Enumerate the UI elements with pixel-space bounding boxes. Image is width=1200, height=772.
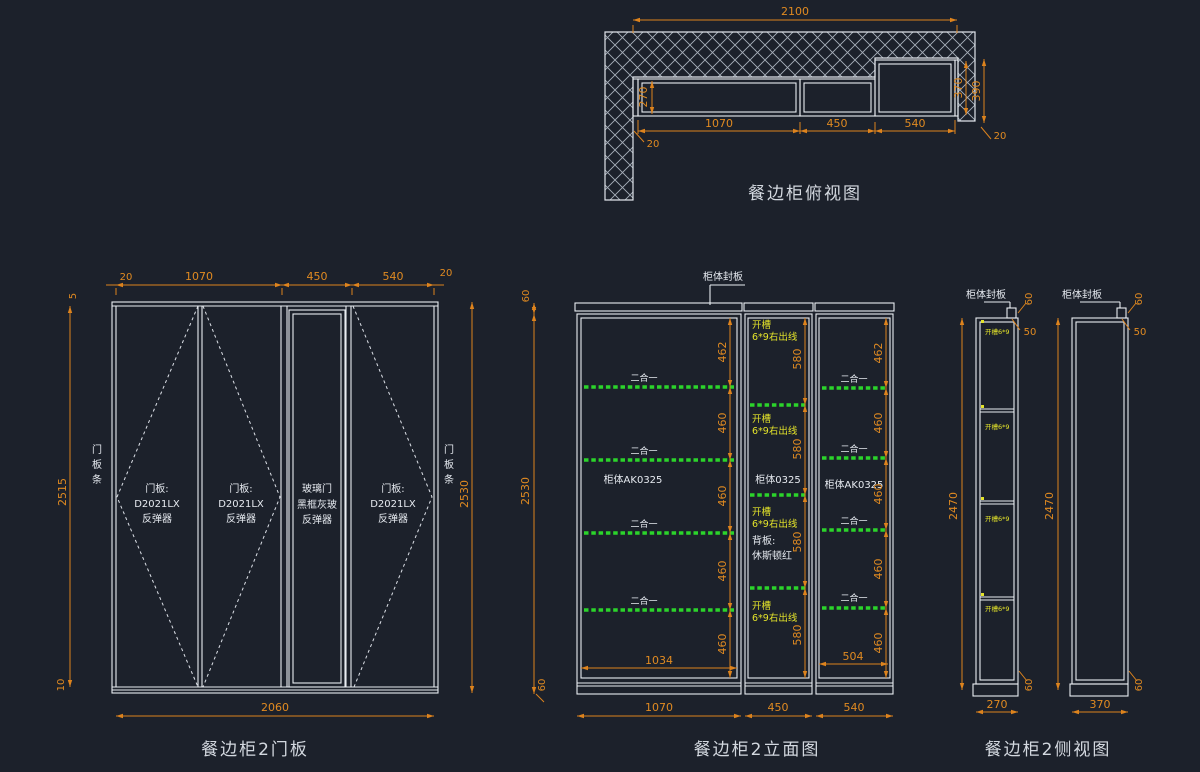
top-view-title: 餐边柜俯视图	[748, 184, 862, 204]
door3-material: 黑框灰玻	[297, 498, 337, 511]
dim-cap-60: 60	[521, 290, 532, 303]
slot-label: 开槽	[752, 506, 772, 518]
dim-mid-580a: 580	[791, 349, 804, 370]
dim-total-2100: 2100	[781, 5, 809, 18]
side-left-cap-label: 柜体封板	[966, 288, 1006, 301]
side-left-outline	[973, 302, 1018, 696]
side-view: 柜体封板 开槽6*9 开槽6*9 开槽6*9 开槽6*9 60 50 2470 …	[947, 288, 1146, 760]
doorview-outline	[112, 302, 438, 693]
dim-inner-504: 504	[843, 650, 864, 663]
strip-label-right-3: 条	[444, 473, 454, 486]
slot-label: 开槽	[752, 319, 772, 331]
dim-height-2530: 2530	[519, 477, 532, 505]
dim-bottom-450: 450	[768, 701, 789, 714]
dim-left-460d: 460	[716, 634, 729, 655]
dim-top-540: 540	[383, 270, 404, 283]
dim-top-1070: 1070	[185, 270, 213, 283]
cad-drawing-canvas: 2100 270 1070 450 540 20 20 370 390 餐边柜俯…	[0, 0, 1200, 772]
door1-label: 门板:	[145, 482, 168, 495]
door4-model: D2021LX	[370, 499, 416, 510]
dim-bottom-540: 540	[844, 701, 865, 714]
back-panel-color: 休斯顿红	[752, 549, 792, 562]
side-dim-offset-50: 50	[1134, 327, 1147, 338]
strip-label-left-1: 门	[92, 443, 102, 456]
connector-label: 二合一	[630, 595, 657, 607]
dim-right-370: 370	[952, 78, 965, 99]
dim-section-1070: 1070	[705, 117, 733, 130]
dim-height-2515: 2515	[56, 478, 69, 506]
connector-label: 二合一	[840, 373, 867, 385]
dim-right-460a: 460	[872, 413, 885, 434]
elevation-view-title: 餐边柜2立面图	[694, 740, 821, 760]
door4-hardware: 反弹器	[378, 512, 408, 525]
dim-section-450: 450	[827, 117, 848, 130]
dim-strip-10: 10	[56, 679, 67, 692]
dim-bottom-2060: 2060	[261, 701, 289, 714]
connector-label: 二合一	[630, 372, 657, 384]
connector-label: 二合一	[630, 445, 657, 457]
dim-gap-left-20: 20	[647, 139, 660, 150]
connector-label: 二合一	[840, 515, 867, 527]
door3-label: 玻璃门	[302, 482, 332, 495]
slot-label: 开槽	[752, 600, 772, 612]
dim-section-540: 540	[905, 117, 926, 130]
side-slot-label: 开槽6*9	[985, 327, 1010, 336]
dim-depth-270: 270	[637, 87, 650, 108]
side-slot-label: 开槽6*9	[985, 422, 1010, 431]
door1-model: D2021LX	[134, 499, 180, 510]
dim-right-462: 462	[872, 343, 885, 364]
side-left-shelf-marks	[981, 320, 984, 596]
connector-label: 二合一	[630, 518, 657, 530]
dim-strip-5: 5	[68, 293, 79, 299]
dim-left-460c: 460	[716, 561, 729, 582]
dim-top-450: 450	[307, 270, 328, 283]
dim-top-20-left: 20	[120, 272, 133, 283]
side-dim-base-60: 60	[1134, 679, 1145, 692]
dim-right-460b: 460	[872, 484, 885, 505]
door-labels: 门板: D2021LX 反弹器 门板: D2021LX 反弹器 玻璃门 黑框灰玻…	[134, 482, 416, 526]
side-dim-370: 370	[1090, 698, 1111, 711]
dim-top-20-right: 20	[440, 268, 453, 279]
side-dim-base-60: 60	[1024, 679, 1035, 692]
slot-wire-label: 6*9右出线	[752, 612, 798, 624]
dim-bottom-1070: 1070	[645, 701, 673, 714]
door2-label: 门板:	[229, 482, 252, 495]
cad-drawing: 2100 270 1070 450 540 20 20 370 390 餐边柜俯…	[0, 0, 1200, 772]
slot-wire-label: 6*9右出线	[752, 518, 798, 530]
side-left-dimensions: 60 50 2470 60 270	[947, 293, 1036, 712]
middle-cabinet-code: 柜体0325	[755, 473, 800, 486]
side-dim-height-2470: 2470	[1043, 492, 1056, 520]
side-dim-cap-60: 60	[1134, 293, 1145, 306]
side-right-outline	[1070, 302, 1128, 696]
dim-mid-580d: 580	[791, 625, 804, 646]
door3-hardware: 反弹器	[302, 513, 332, 526]
door-panel-view: 门板: D2021LX 反弹器 门板: D2021LX 反弹器 玻璃门 黑框灰玻…	[56, 268, 472, 760]
door1-hardware: 反弹器	[142, 512, 172, 525]
door2-hardware: 反弹器	[226, 512, 256, 525]
side-dim-cap-60: 60	[1024, 293, 1035, 306]
top-view: 2100 270 1070 450 540 20 20 370 390 餐边柜俯…	[605, 5, 1006, 204]
dim-right-460d: 460	[872, 633, 885, 654]
elevation-cap-label: 柜体封板	[703, 270, 743, 283]
strip-label-right-2: 板	[444, 458, 454, 471]
back-panel-label: 背板:	[752, 534, 775, 547]
dim-right-460c: 460	[872, 559, 885, 580]
slot-label: 开槽	[752, 413, 772, 425]
door4-label: 门板:	[381, 482, 404, 495]
dim-right-390: 390	[970, 81, 983, 102]
door-swing-marks	[117, 306, 432, 687]
strip-label-left-3: 条	[92, 473, 102, 486]
dim-base-60: 60	[537, 679, 548, 692]
side-dim-offset-50: 50	[1024, 327, 1037, 338]
connector-label: 二合一	[840, 443, 867, 455]
dim-left-460b: 460	[716, 486, 729, 507]
door2-model: D2021LX	[218, 499, 264, 510]
connector-label: 二合一	[840, 592, 867, 604]
slot-wire-label: 6*9右出线	[752, 331, 798, 343]
dim-height-2530: 2530	[458, 480, 471, 508]
door-view-title: 餐边柜2门板	[201, 740, 309, 760]
doorview-dimensions: 20 1070 450 540 20 5 2515 10 2530 2060	[56, 268, 472, 716]
elevation-body-labels: 柜体AK0325 柜体0325 柜体AK0325	[604, 473, 884, 491]
side-view-title: 餐边柜2侧视图	[985, 740, 1112, 760]
elevation-dimensions: 462 460 460 460 460 580 580 580 580 462 …	[519, 290, 893, 716]
side-dim-270: 270	[987, 698, 1008, 711]
elevation-view: 柜体封板 二合一 二合一 二合一 二合一 二合一 二合一 二合一 二合一 开槽	[519, 270, 894, 760]
side-right-cap-label: 柜体封板	[1062, 288, 1102, 301]
left-cabinet-code: 柜体AK0325	[604, 473, 663, 486]
side-slot-label: 开槽6*9	[985, 604, 1010, 613]
elevation-shelves	[584, 387, 887, 610]
strip-label-left-2: 板	[92, 458, 102, 471]
slot-wire-label: 6*9右出线	[752, 425, 798, 437]
side-right-dimensions: 60 50 2470 60 370	[1043, 293, 1146, 712]
side-slot-label: 开槽6*9	[985, 514, 1010, 523]
dim-left-460a: 460	[716, 413, 729, 434]
dim-inner-1034: 1034	[645, 654, 673, 667]
dim-gap-right-20: 20	[994, 131, 1007, 142]
side-dim-height-2470: 2470	[947, 492, 960, 520]
dim-mid-580c: 580	[791, 532, 804, 553]
strip-label-right-1: 门	[444, 443, 454, 456]
dim-left-462: 462	[716, 342, 729, 363]
dim-mid-580b: 580	[791, 439, 804, 460]
